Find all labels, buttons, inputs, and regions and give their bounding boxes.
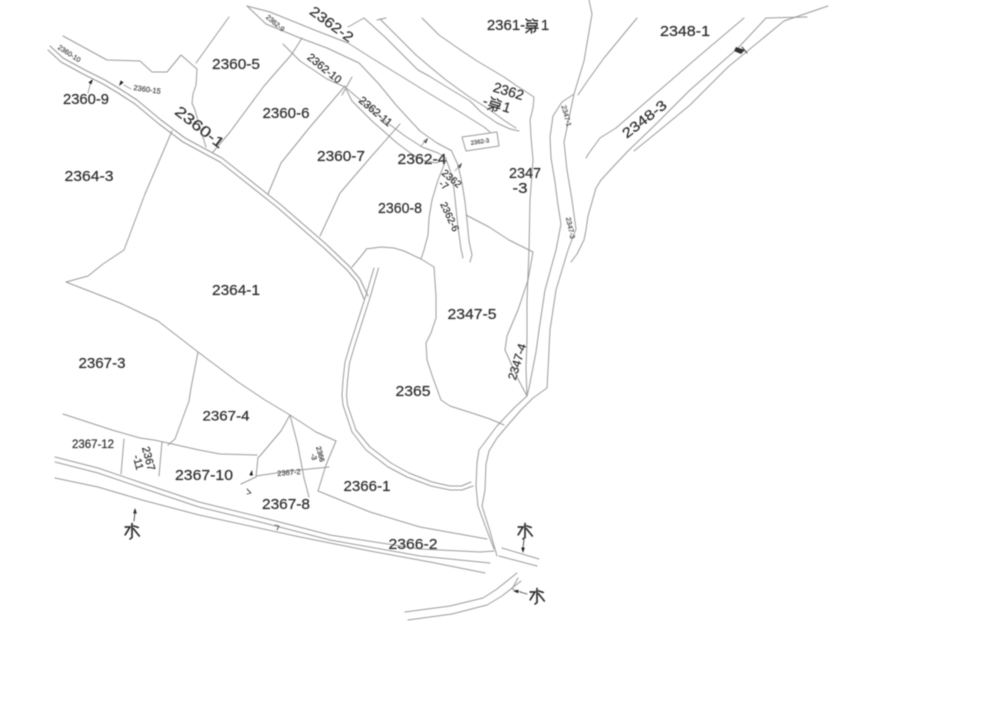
svg-text:-3: -3 xyxy=(513,180,528,197)
svg-text:2360-8: 2360-8 xyxy=(378,200,422,217)
svg-text:1: 1 xyxy=(541,17,549,34)
svg-text:2367-8: 2367-8 xyxy=(262,496,310,513)
svg-text:2366-2: 2366-2 xyxy=(389,536,438,553)
svg-text:2366-1: 2366-1 xyxy=(344,478,391,495)
svg-text:2361-: 2361- xyxy=(487,17,525,34)
svg-text:2365: 2365 xyxy=(396,383,431,400)
svg-text:2347-5: 2347-5 xyxy=(448,306,497,323)
svg-text:2367-10: 2367-10 xyxy=(175,467,233,484)
svg-text:2364-3: 2364-3 xyxy=(65,168,114,185)
svg-text:2367-4: 2367-4 xyxy=(203,408,250,424)
svg-text:2360-5: 2360-5 xyxy=(212,56,260,73)
svg-text:2367-3: 2367-3 xyxy=(79,355,126,372)
svg-text:2367-12: 2367-12 xyxy=(72,437,114,451)
svg-text:2360-6: 2360-6 xyxy=(263,105,310,122)
svg-text:2364-1: 2364-1 xyxy=(212,282,260,299)
svg-text:2348-1: 2348-1 xyxy=(660,23,710,40)
svg-text:2362-4: 2362-4 xyxy=(398,151,447,168)
svg-text:2360-7: 2360-7 xyxy=(317,148,365,165)
svg-text:2360-9: 2360-9 xyxy=(63,91,109,108)
